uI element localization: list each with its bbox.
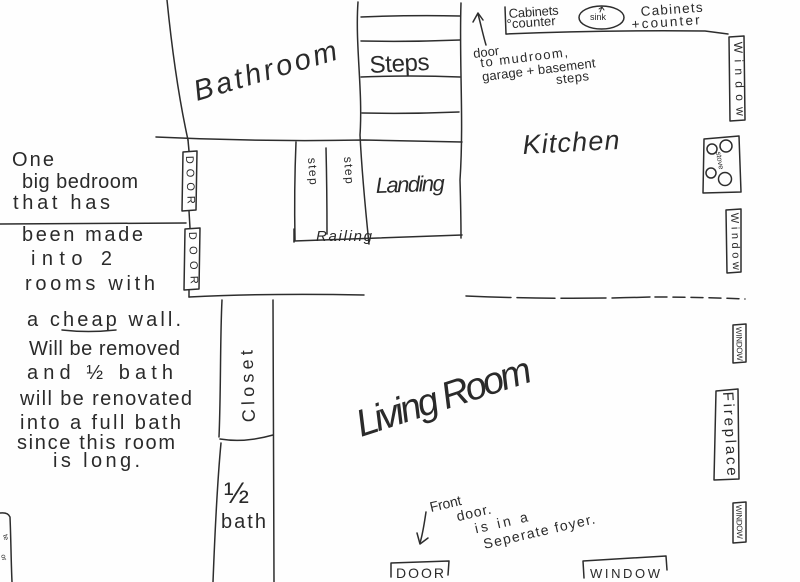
svg-text:step: step <box>305 157 321 185</box>
svg-text:steps: steps <box>555 68 590 87</box>
svg-text:Will be removed: Will be removed <box>29 338 180 360</box>
svg-text:sink: sink <box>590 12 607 22</box>
svg-text:DOOR: DOOR <box>186 232 200 284</box>
svg-text:Kitchen: Kitchen <box>522 125 620 160</box>
svg-text:a cheap wall.: a cheap wall. <box>27 309 181 331</box>
svg-text:Closet: Closet <box>236 350 259 423</box>
svg-text:DOOR: DOOR <box>183 156 197 204</box>
svg-text:Fireplace: Fireplace <box>719 391 740 476</box>
svg-text:stove: stove <box>714 151 726 170</box>
svg-text:Window: Window <box>728 213 742 270</box>
svg-text:or: or <box>0 554 8 562</box>
svg-text:DOOR: DOOR <box>396 565 444 581</box>
svg-text:into a full bath: into a full bath <box>20 412 181 434</box>
svg-text:is long.: is long. <box>53 450 140 472</box>
svg-text:Railing: Railing <box>316 228 373 245</box>
svg-text:will be renovated: will be renovated <box>19 388 192 410</box>
svg-text:Living Room: Living Room <box>351 349 537 445</box>
svg-text:Bathroom: Bathroom <box>190 35 341 108</box>
svg-text:big bedroom: big bedroom <box>22 171 138 193</box>
svg-text:that has: that has <box>13 192 110 214</box>
svg-text:been made: been made <box>22 224 143 246</box>
svg-text:One: One <box>12 149 54 171</box>
svg-text:WINDOW: WINDOW <box>590 566 661 581</box>
svg-text:step: step <box>341 156 357 184</box>
svg-text:°counter: °counter <box>506 13 557 31</box>
svg-text:into 2: into 2 <box>31 248 112 270</box>
svg-text:Landing: Landing <box>375 171 446 198</box>
svg-text:te: te <box>1 534 9 542</box>
svg-text:and ½ bath: and ½ bath <box>27 362 173 384</box>
svg-text:rooms with: rooms with <box>25 273 155 295</box>
svg-text:½: ½ <box>224 477 249 510</box>
svg-text:bath: bath <box>221 511 266 533</box>
svg-text:WINDOW: WINDOW <box>734 327 744 362</box>
svg-text:WINDOW: WINDOW <box>734 505 744 540</box>
svg-text:Steps: Steps <box>369 49 430 79</box>
